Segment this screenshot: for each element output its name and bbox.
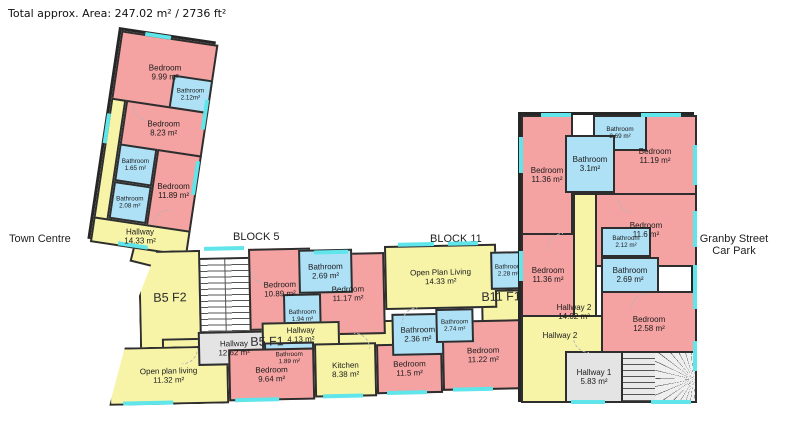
room-area: 10.89 m² [264,289,297,299]
room-label: Bedroom9.64 m² [255,365,288,384]
room-area: 5.83 m² [577,377,612,386]
room-label: Bedroom11.22 m² [467,345,500,364]
room-label: Bedroom11.17 m² [332,284,365,303]
room-name: Bathroom [122,158,149,165]
room-name: Bathroom [573,155,608,164]
room-area: 2.69 m² [613,275,648,284]
room-name: Bathroom [177,87,204,94]
window-strip [693,265,697,309]
room-area: 11.32 m² [140,375,198,385]
room-bathroom-2-74: Bathroom2.74 m² [435,308,474,343]
window-strip [123,401,173,406]
building-central: Open plan living11.32 m² Hallway12.62 m²… [100,241,525,406]
corridor-hallway-2 [573,193,597,319]
room-label: Open Plan Living14.33 m² [410,267,471,287]
room-area: 2.36 m² [400,334,435,344]
building-right: Bedroom11.36 m² Bedroom11.19 m² Bathroom… [518,112,694,402]
label-b5-f2: B5 F2 [137,290,203,305]
window-strip [571,400,605,404]
room-name: Bedroom [639,147,671,156]
room-label: Bedroom11.36 m² [532,266,564,284]
room-area: 11.5 m² [393,368,426,378]
room-label: Bathroom2.69 m² [613,266,648,284]
room-area: 12.58 m² [633,324,665,333]
room-name: Bedroom [531,166,563,175]
room-bathroom-3-1: Bathroom3.1m² [565,135,615,193]
stairs-block5 [198,257,252,334]
room-label: Bathroom2.08 m² [117,195,144,209]
hallway-2-label: Hallway 2 [529,331,591,340]
window-strip [641,113,681,117]
label-granby-street: Granby Street Car Park [694,233,774,257]
room-area: 14.02 m² [543,312,605,321]
room-name: Hallway 1 [577,368,612,377]
room-area: 9.64 m² [255,374,288,384]
room-label: Bedroom11.36 m² [531,166,563,184]
room-label: Bedroom10.89 m² [263,280,296,299]
room-label: Bathroom2.69 m² [308,262,343,281]
room-label: Bedroom12.58 m² [633,315,665,333]
room-area: 11.19 m² [639,156,671,165]
window-strip [314,250,348,255]
room-kitchen-8-38: Kitchen8.38 m² [314,342,377,397]
room-name: Bedroom [158,182,190,191]
room-bathroom-2-08: Bathroom2.08 m² [109,181,152,224]
granby-line-1: Granby Street [694,233,774,245]
room-name: Bathroom [612,235,639,242]
window-strip [398,242,434,247]
window-strip [519,137,523,173]
room-area: 2.69 m² [308,271,343,281]
room-bathroom-1-65: Bathroom1.65 m² [114,143,157,186]
room-area: 3.1m² [573,164,608,173]
window-strip [541,113,571,117]
room-label: Bathroom2.36 m² [400,325,435,344]
room-area: 8.23 m² [148,129,180,138]
room-label: Bedroom11.5 m² [393,359,426,378]
floor-plan: Total approx. Area: 247.02 m² / 2736 ft²… [0,0,789,444]
room-label: Hallway 15.83 m² [577,368,612,386]
window-strip [693,145,697,185]
room-name: Hallway 2 [543,303,605,312]
room-label: Bathroom1.65 m² [122,158,149,172]
window-strip [448,241,478,246]
total-area-title: Total approx. Area: 247.02 m² / 2736 ft² [8,7,226,20]
room-name: Bathroom [117,195,144,202]
room-area: 12.62 m² [218,348,250,358]
room-label: Bathroom2.12 m² [612,235,639,249]
room-name: Bedroom [148,120,180,129]
room-area: 2.12m² [177,94,204,101]
room-area: 9.99 m² [149,72,181,81]
room-area: 14.33 m² [124,236,156,245]
room-name: Bathroom [606,126,633,133]
window-strip [693,211,697,247]
window-strip [323,394,363,399]
room-bedroom-12-58: Bedroom12.58 m² [601,291,697,357]
room-area: 11.36 m² [532,275,564,284]
room-area: 11.36 m² [531,175,563,184]
window-strip [204,246,244,251]
room-label: Bathroom2.12m² [177,87,204,101]
window-strip [453,387,493,392]
room-label: Open plan living11.32 m² [140,366,198,386]
room-label: Bedroom8.23 m² [148,120,180,138]
room-name: Bedroom [149,63,181,72]
room-hallway-1: Hallway 15.83 m² [565,351,623,403]
room-area: 8.38 m² [332,370,359,380]
room-area: 2.69 m² [606,133,633,140]
room-label: Bathroom3.1m² [573,155,608,173]
stairs-right [621,351,697,403]
room-area: 1.65 m² [122,165,149,172]
room-name: Hallway 2 [529,331,591,340]
room-name: Bathroom [613,266,648,275]
room-label: Bathroom1.89 m² [275,351,303,366]
window-strip [693,341,697,371]
room-area: 11.17 m² [332,293,365,303]
room-label: Kitchen8.38 m² [332,360,360,379]
building-top-left: Bedroom9.99 m² Bathroom2.12m² Bedroom8.2… [87,27,216,253]
label-b5-f1: B5 F1 [242,334,292,349]
door-arc [401,307,417,323]
room-label: Bathroom2.74 m² [441,318,469,333]
room-area: 14.33 m² [410,276,471,286]
room-name: Bedroom [630,221,662,230]
room-label: Hallway14.33 m² [124,227,156,245]
room-area: 11.22 m² [467,355,500,365]
window-strip [651,400,691,404]
room-label: Bathroom2.69 m² [606,126,633,140]
room-name: Hallway [124,227,156,236]
label-town-centre: Town Centre [9,233,71,245]
hallway-2-area-label: Hallway 214.02 m² [543,303,605,321]
room-area: 11.89 m² [158,191,190,200]
room-area: 2.74 m² [441,325,468,333]
room-name: Bedroom [532,266,564,275]
room-name: Bedroom [633,315,665,324]
room-bathroom-2-69-mid: Bathroom2.69 m² [601,257,659,293]
room-label: Bedroom9.99 m² [149,63,181,81]
granby-line-2: Car Park [694,245,774,257]
room-label: Bedroom11.89 m² [158,182,190,200]
window-strip [387,390,427,395]
room-area: 2.08 m² [117,203,144,210]
label-block-5: BLOCK 5 [233,231,279,243]
room-area: 1.94 m² [289,315,316,323]
window-strip [519,251,523,281]
window-strip [235,397,279,402]
room-label: Bathroom1.94 m² [289,308,317,323]
room-label: Bedroom11.19 m² [639,147,671,165]
room-area: 2.12 m² [612,242,639,249]
